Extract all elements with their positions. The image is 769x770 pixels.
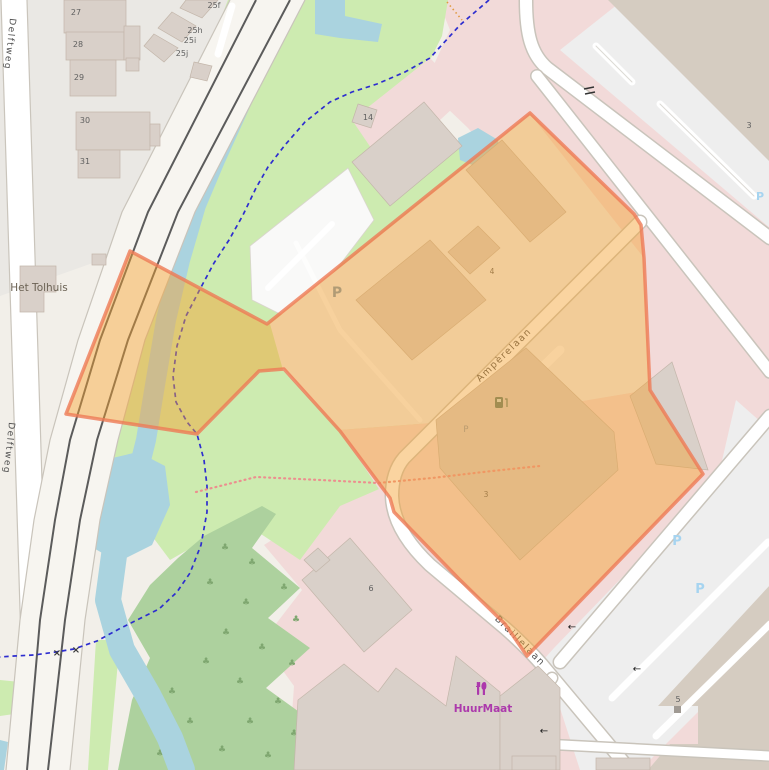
svg-text:♣: ♣: [236, 677, 244, 687]
svg-text:♣: ♣: [218, 745, 226, 755]
svg-text:28: 28: [73, 40, 83, 49]
svg-text:♣: ♣: [292, 615, 300, 625]
svg-text:27: 27: [71, 8, 81, 17]
svg-text:♣: ♣: [221, 543, 229, 553]
svg-text:25f: 25f: [208, 1, 221, 10]
svg-text:14: 14: [363, 113, 373, 122]
svg-text:P: P: [695, 582, 705, 597]
svg-text:♣: ♣: [288, 659, 296, 669]
svg-text:25j: 25j: [176, 49, 188, 58]
svg-text:♣: ♣: [246, 717, 254, 727]
svg-text:30: 30: [80, 116, 90, 125]
svg-text:♣: ♣: [222, 628, 230, 638]
poi-square-icon: [674, 706, 681, 713]
map-canvas[interactable]: ♣♣♣ ♣♣♣ ♣♣♣ ♣♣♣ ♣♣♣ ♣♣♣ ♣: [0, 0, 769, 770]
svg-text:♣: ♣: [274, 697, 282, 707]
svg-text:25h: 25h: [187, 26, 202, 35]
svg-text:♣: ♣: [280, 583, 288, 593]
svg-text:♣: ♣: [264, 751, 272, 761]
place-label-huurmaat: HuurMaat: [454, 703, 513, 715]
svg-text:×: ×: [72, 645, 80, 656]
svg-text:3: 3: [746, 121, 751, 130]
svg-text:←: ←: [633, 664, 641, 675]
svg-text:♣: ♣: [258, 643, 266, 653]
svg-text:31: 31: [80, 157, 90, 166]
place-label-het-tolhuis: Het Tolhuis: [10, 282, 67, 294]
svg-text:P: P: [756, 190, 764, 203]
svg-text:5: 5: [675, 695, 680, 704]
svg-text:♣: ♣: [202, 657, 210, 667]
svg-text:×: ×: [53, 648, 61, 659]
svg-text:♣: ♣: [168, 687, 176, 697]
svg-text:P: P: [672, 534, 682, 549]
svg-text:6: 6: [368, 584, 373, 593]
svg-text:♣: ♣: [248, 558, 256, 568]
svg-text:♣: ♣: [242, 598, 250, 608]
svg-text:25i: 25i: [184, 36, 196, 45]
svg-text:←: ←: [568, 622, 576, 633]
svg-text:←: ←: [540, 726, 548, 737]
svg-text:♣: ♣: [186, 717, 194, 727]
svg-text:♣: ♣: [206, 578, 214, 588]
svg-text:29: 29: [74, 73, 84, 82]
